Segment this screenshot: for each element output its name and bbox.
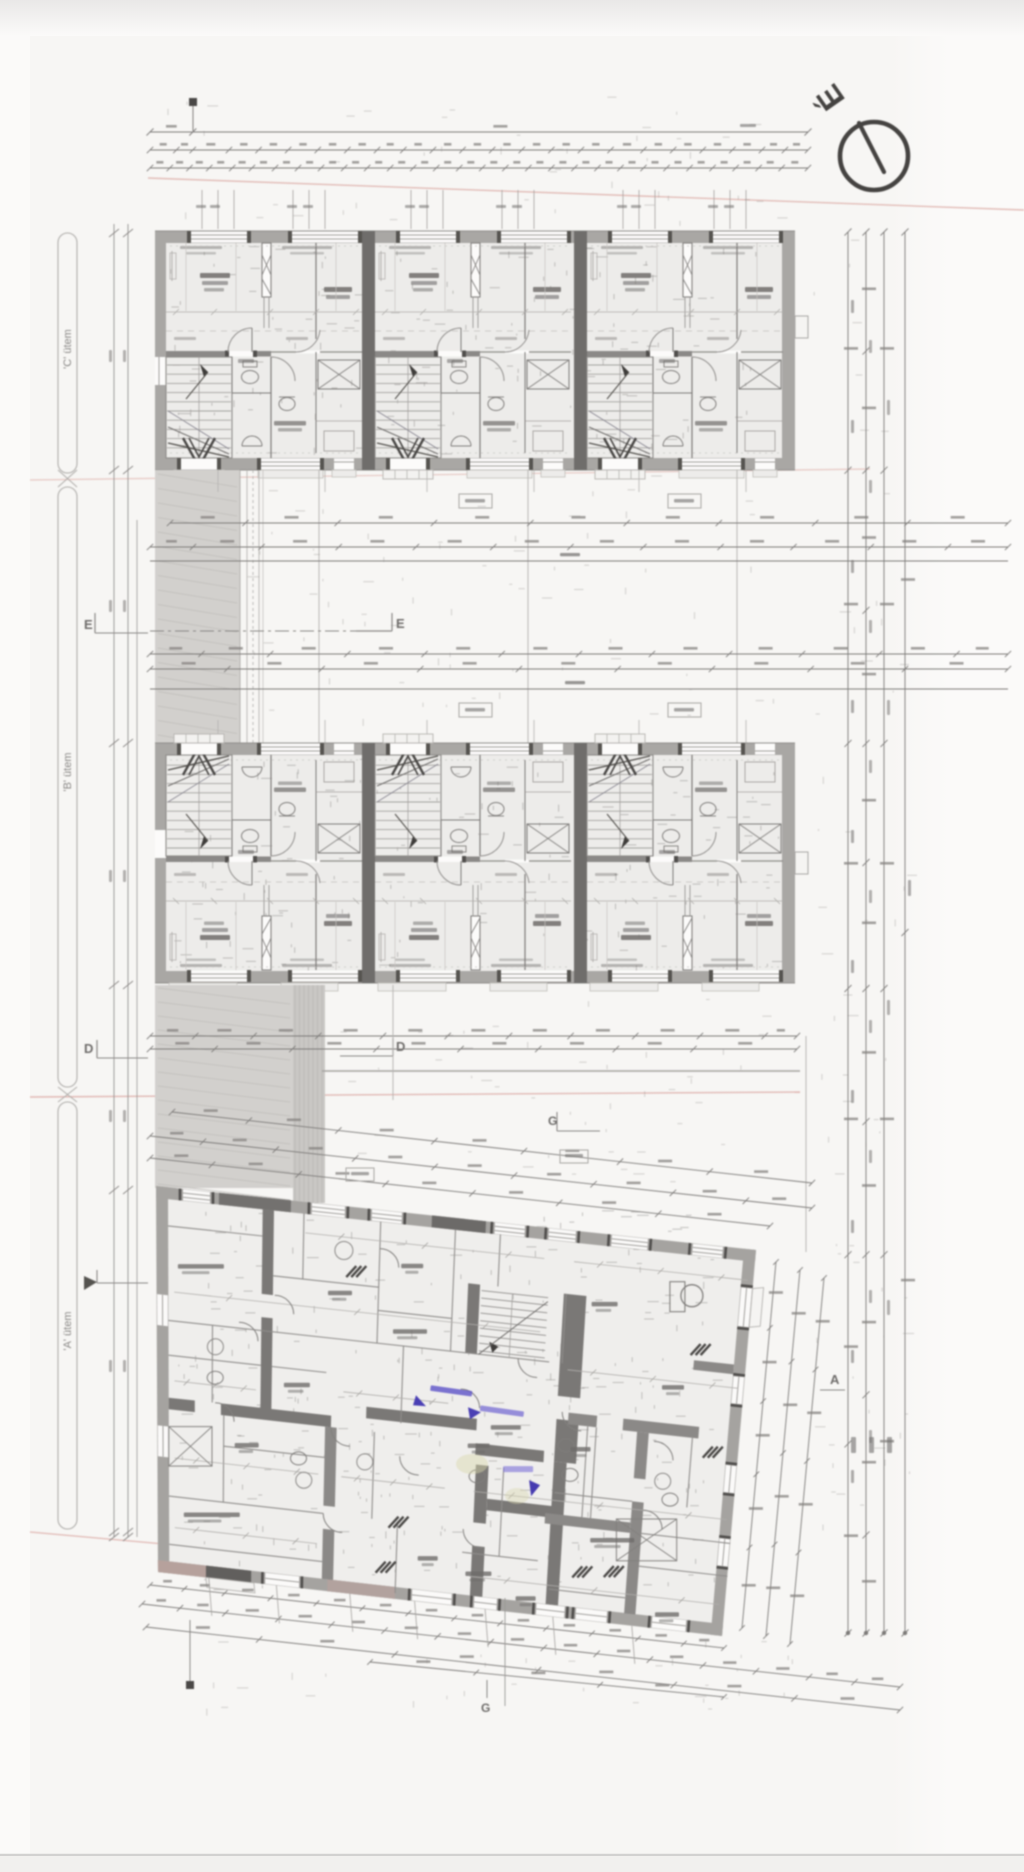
svg-text:D: D bbox=[396, 1039, 405, 1054]
svg-text:E: E bbox=[84, 617, 93, 632]
svg-text:G: G bbox=[481, 1701, 490, 1715]
svg-text:A: A bbox=[830, 1372, 840, 1387]
svg-text:D: D bbox=[84, 1041, 93, 1056]
svg-text:'B' ütem: 'B' ütem bbox=[62, 752, 74, 791]
svg-text:'C' ütem: 'C' ütem bbox=[62, 329, 74, 369]
svg-text:E: E bbox=[396, 616, 405, 631]
svg-text:'A' ütem: 'A' ütem bbox=[62, 1311, 74, 1350]
svg-text:G: G bbox=[548, 1114, 557, 1128]
